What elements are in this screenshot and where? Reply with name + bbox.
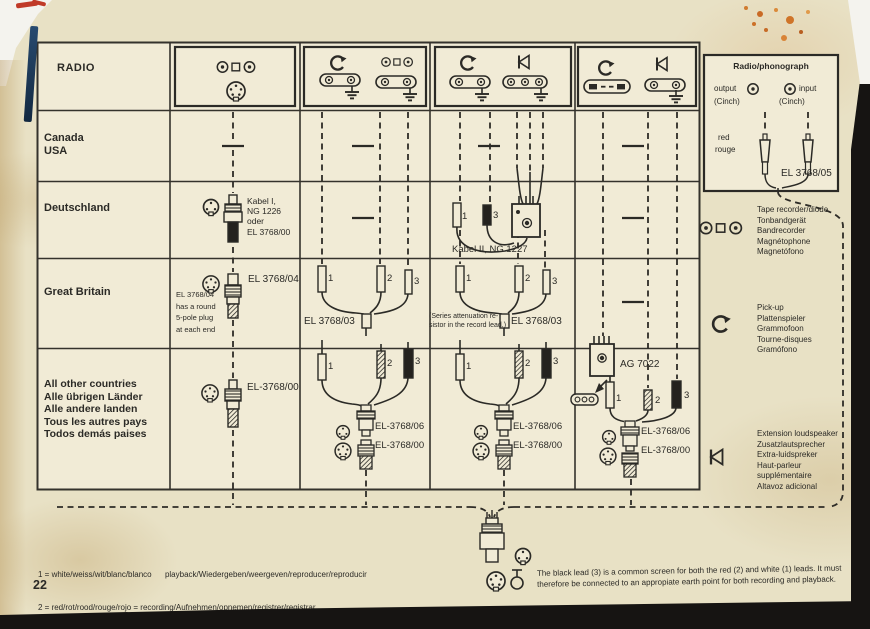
output-label: output bbox=[714, 84, 736, 95]
pickup-labels: Pick-up Plattenspieler Grammofoon Tourne… bbox=[757, 303, 812, 356]
label-line: Grammofoon bbox=[757, 324, 812, 335]
label-line: Magnétophone bbox=[757, 237, 828, 248]
row-label-all-other: All other countries Alle übrigen Länder … bbox=[44, 378, 147, 441]
kabel2-label: Kabel II, NG 1227 bbox=[452, 245, 528, 256]
el3768-06-label: EL-3768/06 bbox=[513, 422, 562, 433]
row-label-line: Alle übrigen Länder bbox=[44, 391, 147, 404]
allother-plug-label: EL-3768/00 bbox=[247, 383, 299, 394]
common-din-plug bbox=[480, 510, 504, 562]
row-label-line: Tous les autres pays bbox=[44, 416, 147, 429]
input-label: input bbox=[799, 84, 816, 95]
terminal-strip-icon bbox=[645, 79, 685, 91]
terminal-strip-icon bbox=[450, 76, 490, 88]
lead-number: 3 bbox=[493, 210, 498, 221]
diode-icon bbox=[711, 450, 723, 465]
page-number: 22 bbox=[33, 580, 47, 591]
el3768-00-label: EL-3768/00 bbox=[641, 446, 690, 457]
lead-number: 2 bbox=[525, 273, 530, 284]
scanned-manual-page: 1 3 1 2 3 bbox=[0, 0, 870, 629]
lead-number: 2 bbox=[387, 358, 392, 369]
label-line: supplémentaire bbox=[757, 471, 838, 482]
din3-socket-icon bbox=[603, 431, 616, 445]
label-line: Pick-up bbox=[757, 303, 812, 314]
lead-number: 3 bbox=[415, 356, 420, 367]
scan-edge-right bbox=[851, 84, 870, 629]
label-line: EL 3768/00 bbox=[247, 227, 290, 237]
row-label-line: Todos demás paises bbox=[44, 428, 147, 441]
el3768-03-label-right: EL 3768/03 bbox=[511, 317, 562, 328]
terminal-strip-icon bbox=[320, 74, 360, 86]
cable-el3768-04 bbox=[225, 274, 241, 318]
label-line: Haut-parleur bbox=[757, 461, 838, 472]
lead-number: 2 bbox=[387, 273, 392, 284]
terminal-strip-icon bbox=[503, 76, 547, 88]
lead-number: 1 bbox=[328, 361, 333, 372]
row-label-canada-usa: Canada USA bbox=[44, 132, 84, 158]
rouge-label: rouge bbox=[715, 145, 735, 156]
ink-speckles bbox=[744, 6, 748, 10]
note-line: has a round bbox=[176, 301, 216, 313]
label-line: Tourne-disques bbox=[757, 335, 812, 346]
din3-socket-icon bbox=[337, 426, 350, 440]
lead-number: 1 bbox=[466, 273, 471, 284]
cinch-label-right: (Cinch) bbox=[779, 97, 805, 108]
lead-number: 3 bbox=[684, 390, 689, 401]
label-line: oder bbox=[247, 216, 290, 226]
terminal-strip-icon bbox=[376, 76, 416, 88]
label-line: Magnetófono bbox=[757, 247, 828, 258]
loudspeaker-labels: Extension loudspeaker Zusatzlautsprecher… bbox=[757, 429, 838, 492]
el3768-06-label: EL-3768/06 bbox=[375, 422, 424, 433]
din5-socket-icon bbox=[487, 572, 505, 591]
lead-number: 2 bbox=[655, 395, 660, 406]
din5-socket-icon bbox=[600, 448, 616, 465]
din3-socket-icon bbox=[204, 200, 219, 216]
ag7022-label: AG 7022 bbox=[620, 360, 659, 371]
row-label-line: Alle andere landen bbox=[44, 403, 147, 416]
radio-header-label: RADIO bbox=[57, 63, 95, 74]
gb-plug-label: EL 3768/04 bbox=[248, 275, 299, 286]
label-line: Bandrecorder bbox=[757, 226, 828, 237]
note-line: 5-pole plug bbox=[176, 312, 216, 324]
din-speaker-strip-icon bbox=[584, 80, 630, 93]
din5-socket-icon bbox=[335, 443, 351, 460]
lead-number: 3 bbox=[553, 356, 558, 367]
lead-number: 3 bbox=[414, 276, 419, 287]
note-line: EL 3768/04 bbox=[176, 289, 216, 301]
note-line: at each end bbox=[176, 324, 216, 336]
lead-number: 1 bbox=[616, 393, 621, 404]
cable-label-el3768-05: EL 3768/05 bbox=[781, 169, 832, 180]
radio-phonograph-title: Radio/phonograph bbox=[704, 61, 838, 72]
el3768-03-label-left: EL 3768/03 bbox=[304, 317, 355, 328]
din5-socket-icon bbox=[202, 385, 218, 402]
cinch-strip-icon bbox=[700, 222, 741, 233]
row-label-line: Canada bbox=[44, 132, 84, 145]
el3768-06-label: EL-3768/06 bbox=[641, 427, 690, 438]
din3-socket-icon bbox=[475, 426, 488, 440]
red-label: red bbox=[718, 133, 730, 144]
earth-point-icon bbox=[511, 570, 523, 589]
kabel1-label: Kabel I, NG 1226 oder EL 3768/00 bbox=[247, 196, 290, 237]
note-line: (Series attenuation re- bbox=[429, 312, 506, 321]
label-line: Tonbandgerät bbox=[757, 216, 828, 227]
legend-line: 1 = white/weiss/wit/blanc/blanco playbac… bbox=[38, 569, 367, 580]
label-line: Extra-luidspreker bbox=[757, 450, 838, 461]
label-line: Altavoz adicional bbox=[757, 482, 838, 493]
label-line: Kabel I, bbox=[247, 196, 290, 206]
tape-recorder-labels: Tape recorder/diode Tonbandgerät Bandrec… bbox=[757, 205, 828, 258]
label-line: Tape recorder/diode bbox=[757, 205, 828, 216]
page-edge-shading bbox=[0, 60, 26, 620]
row-label-great-britain: Great Britain bbox=[44, 287, 111, 298]
note-line: sistor in the record lead.) bbox=[429, 321, 506, 330]
din5-socket-icon bbox=[473, 443, 489, 460]
label-line: NG 1226 bbox=[247, 206, 290, 216]
row-label-line: USA bbox=[44, 145, 84, 158]
cinch-label-left: (Cinch) bbox=[714, 97, 740, 108]
el3768-00-label: EL-3768/00 bbox=[375, 441, 424, 452]
din5-socket-icon bbox=[227, 82, 245, 101]
label-line: Plattenspieler bbox=[757, 314, 812, 325]
lead-number: 2 bbox=[525, 358, 530, 369]
series-resistor-note: (Series attenuation re- sistor in the re… bbox=[429, 312, 506, 330]
el3768-00-label: EL-3768/00 bbox=[513, 441, 562, 452]
lead-number: 3 bbox=[552, 276, 557, 287]
gb-plug-note: EL 3768/04 has a round 5-pole plug at ea… bbox=[176, 289, 216, 335]
row-label-line: All other countries bbox=[44, 378, 147, 391]
lead-number: 1 bbox=[328, 273, 333, 284]
pickup-icon bbox=[713, 316, 731, 332]
label-line: Zusatzlautsprecher bbox=[757, 440, 838, 451]
lead-number: 1 bbox=[462, 211, 467, 222]
row-label-deutschland: Deutschland bbox=[44, 203, 110, 214]
label-line: Gramófono bbox=[757, 345, 812, 356]
din3-socket-icon bbox=[516, 549, 531, 565]
label-line: Extension loudspeaker bbox=[757, 429, 838, 440]
lead-number: 1 bbox=[466, 361, 471, 372]
